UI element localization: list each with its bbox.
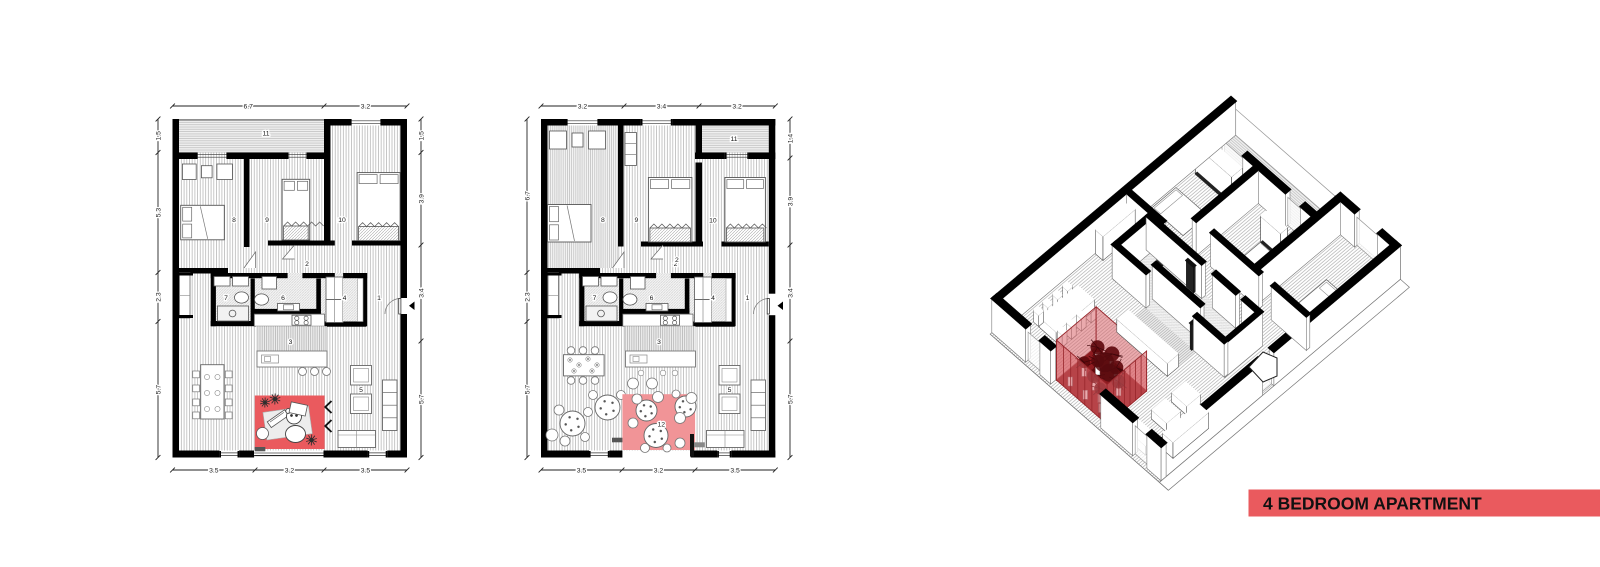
svg-text:3.5: 3.5: [730, 467, 740, 474]
svg-text:5.7: 5.7: [787, 394, 794, 404]
svg-text:10: 10: [709, 218, 717, 225]
svg-text:8: 8: [232, 217, 236, 224]
svg-text:3.2: 3.2: [361, 103, 371, 110]
svg-text:2: 2: [305, 261, 309, 268]
svg-text:12: 12: [658, 422, 666, 429]
svg-text:3: 3: [657, 339, 661, 346]
svg-text:1.4: 1.4: [787, 134, 794, 144]
svg-text:3.2: 3.2: [285, 467, 295, 474]
svg-text:7: 7: [224, 295, 228, 302]
svg-text:3.2: 3.2: [654, 467, 664, 474]
svg-text:4: 4: [711, 295, 715, 302]
svg-text:3.4: 3.4: [418, 288, 425, 298]
svg-text:1.5: 1.5: [155, 131, 162, 141]
svg-text:11: 11: [730, 136, 737, 143]
svg-text:1: 1: [377, 295, 381, 302]
svg-text:5: 5: [359, 387, 363, 394]
svg-text:3.5: 3.5: [361, 467, 371, 474]
svg-text:1: 1: [746, 295, 750, 302]
svg-text:2: 2: [675, 257, 679, 264]
svg-text:5.7: 5.7: [524, 385, 531, 395]
svg-text:5.7: 5.7: [418, 394, 425, 404]
svg-text:9: 9: [635, 217, 639, 224]
svg-text:6.7: 6.7: [524, 191, 531, 201]
svg-text:3.5: 3.5: [577, 467, 587, 474]
svg-text:4 BEDROOM APARTMENT: 4 BEDROOM APARTMENT: [1263, 494, 1482, 514]
svg-text:2.3: 2.3: [155, 292, 162, 302]
svg-text:3.4: 3.4: [787, 288, 794, 298]
svg-text:3.5: 3.5: [209, 467, 219, 474]
svg-text:10: 10: [338, 217, 346, 224]
svg-text:5.7: 5.7: [155, 385, 162, 395]
svg-text:3.2: 3.2: [732, 103, 742, 110]
svg-text:6: 6: [650, 295, 654, 302]
svg-text:2.3: 2.3: [524, 292, 531, 302]
svg-text:5: 5: [728, 387, 732, 394]
svg-text:6: 6: [281, 295, 285, 302]
svg-text:3.9: 3.9: [787, 197, 794, 207]
svg-text:8: 8: [601, 217, 605, 224]
svg-text:7: 7: [593, 295, 597, 302]
svg-text:3.2: 3.2: [578, 103, 588, 110]
svg-text:5.3: 5.3: [155, 208, 162, 218]
svg-text:3: 3: [289, 339, 293, 346]
svg-text:1.5: 1.5: [418, 131, 425, 141]
svg-text:11: 11: [262, 131, 269, 138]
svg-text:9: 9: [265, 217, 269, 224]
svg-text:4: 4: [343, 295, 347, 302]
svg-text:3.9: 3.9: [418, 194, 425, 204]
svg-text:3.4: 3.4: [657, 103, 667, 110]
svg-text:6.7: 6.7: [243, 103, 253, 110]
